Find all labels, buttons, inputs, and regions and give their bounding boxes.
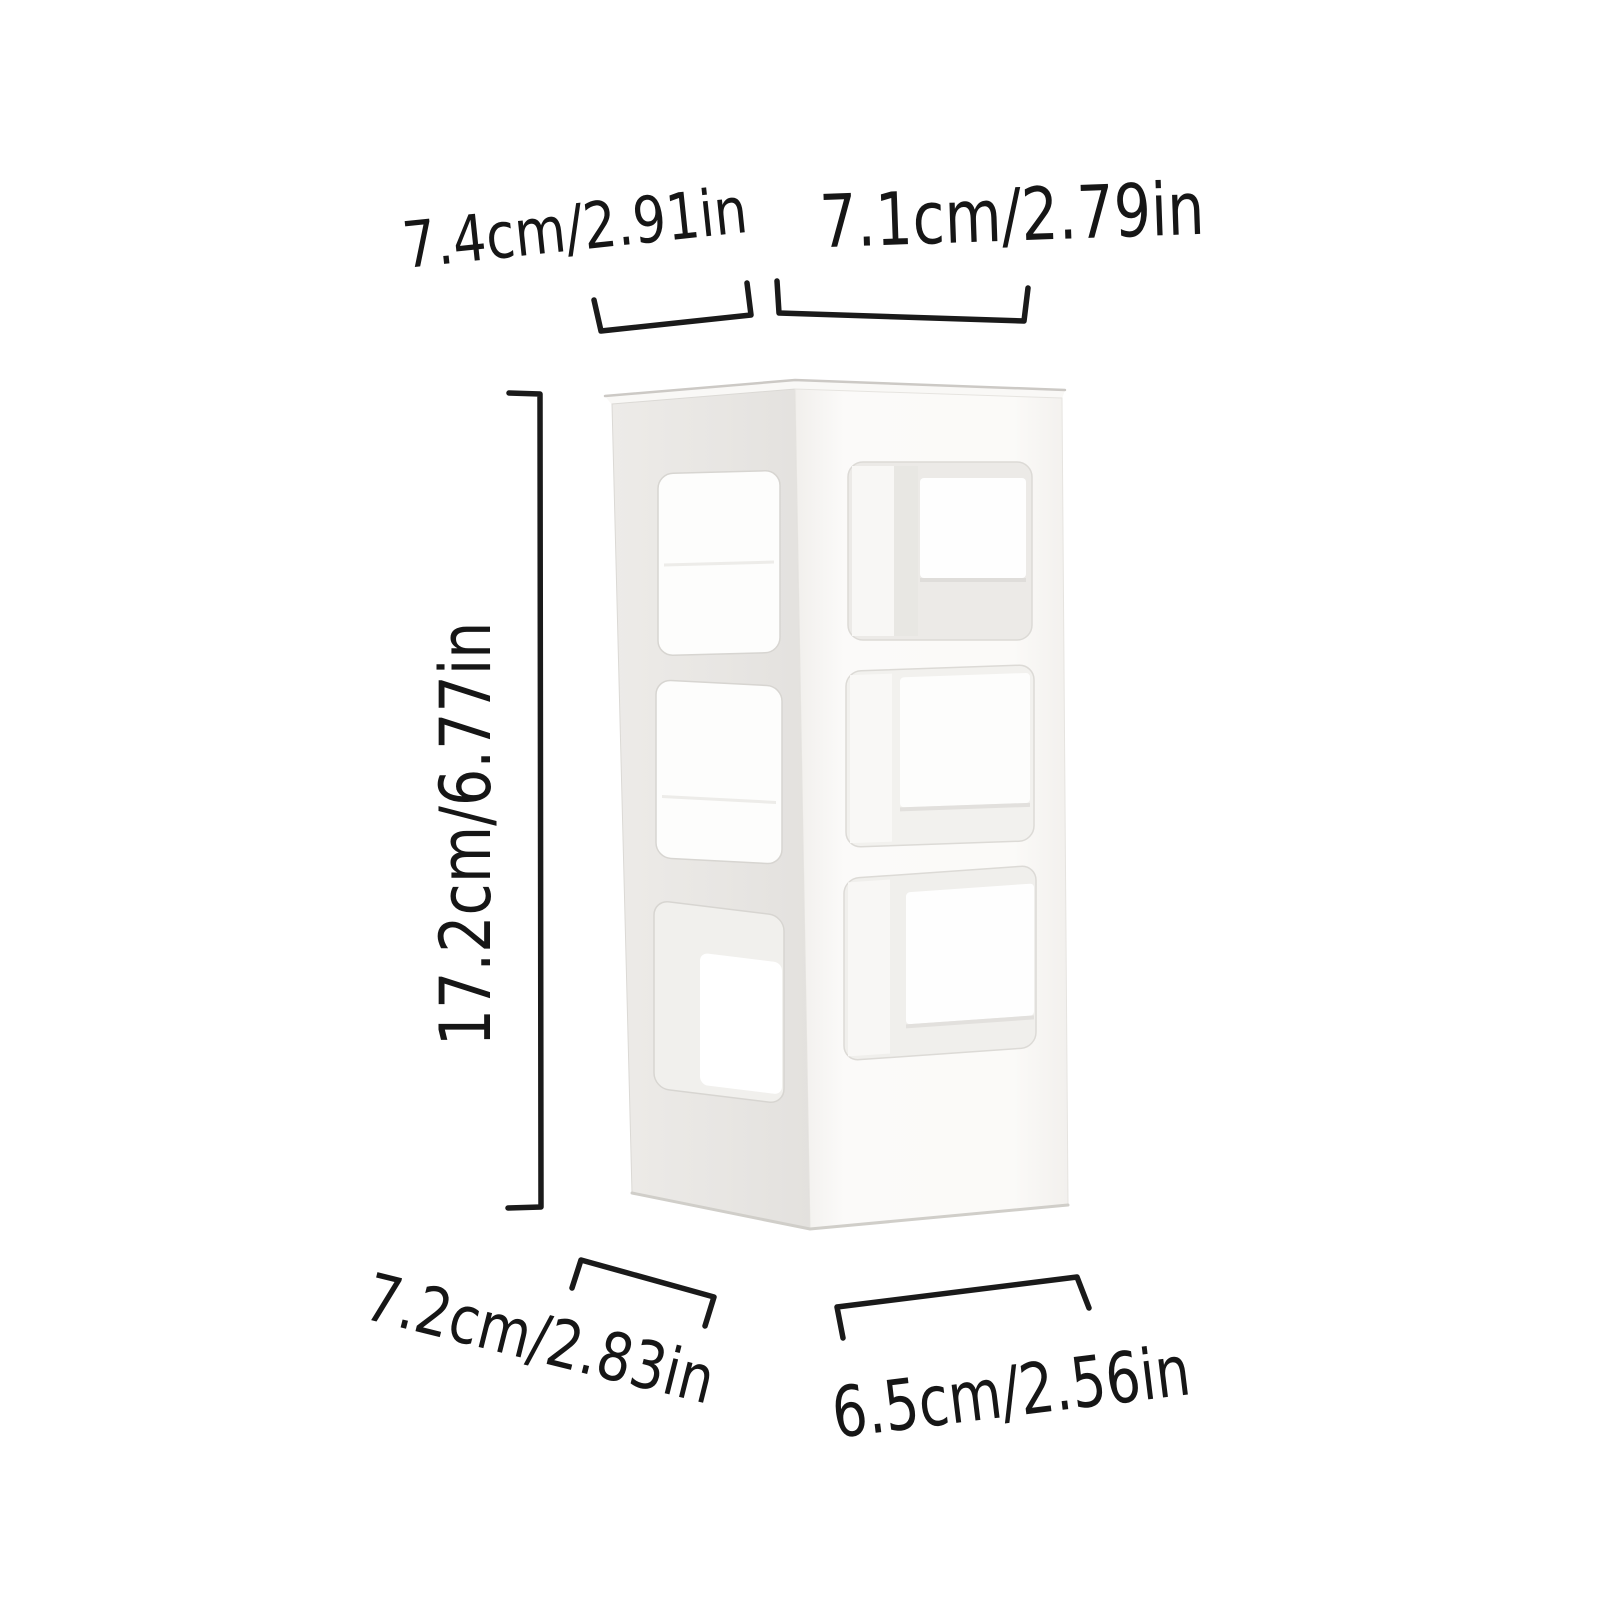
dimension-label-height: 17.2cm/6.77in	[425, 622, 507, 1047]
window-right-tier2	[846, 665, 1034, 848]
bracket-height	[508, 393, 541, 1208]
product-storage-rack	[605, 380, 1068, 1229]
window-right-tier1	[848, 462, 1032, 640]
bracket-top-depth	[777, 281, 1028, 321]
window-right-tier3	[844, 865, 1036, 1060]
bracket-bottom-depth	[837, 1277, 1089, 1338]
product-illustration	[0, 0, 1600, 1600]
dimension-label-top-depth: 7.1cm/2.79in	[818, 167, 1206, 265]
dimension-diagram: 7.4cm/2.91in 7.1cm/2.79in 17.2cm/6.77in …	[0, 0, 1600, 1600]
window-left-tier1	[658, 470, 780, 655]
window-left-tier3	[654, 900, 784, 1104]
window-left-tier2	[656, 680, 782, 865]
bracket-top-width	[594, 283, 751, 331]
